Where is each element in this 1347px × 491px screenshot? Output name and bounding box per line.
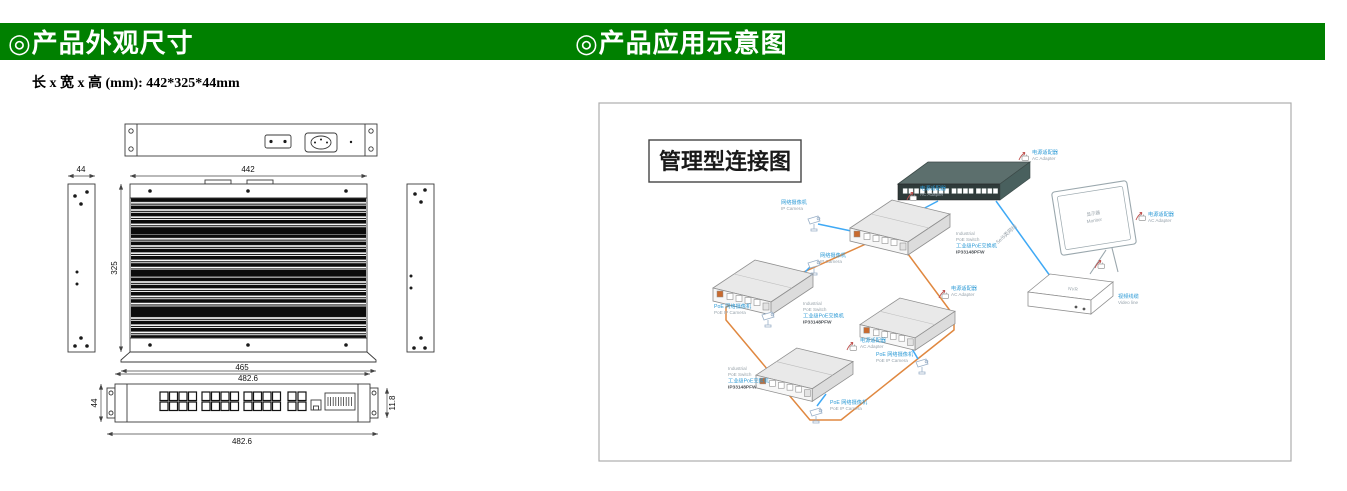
terminal-block	[265, 135, 291, 148]
svg-text:IP Camera: IP Camera	[781, 206, 803, 211]
svg-text:IP33148PFW: IP33148PFW	[728, 385, 757, 391]
svg-text:AC Adapter: AC Adapter	[1032, 156, 1056, 161]
dim-ear-depth: 11.8	[388, 395, 397, 411]
right-side-view	[407, 184, 434, 352]
svg-text:AC Adapter: AC Adapter	[1148, 218, 1172, 223]
svg-text:AC Adapter: AC Adapter	[920, 192, 944, 197]
ac-power-inlet	[305, 133, 337, 152]
svg-text:电源适配器: 电源适配器	[860, 336, 887, 344]
ac-adapter-label-4: 电源适配器 AC Adapter	[860, 336, 887, 349]
dim-top-depth: 325	[110, 261, 119, 275]
svg-text:PoE IP Camera: PoE IP Camera	[714, 310, 746, 315]
svg-text:PoE IP Camera: PoE IP Camera	[876, 358, 908, 363]
svg-text:AC Adapter: AC Adapter	[860, 344, 884, 349]
dim-front-base-width: 482.6	[232, 437, 253, 446]
diagram-title: 管理型连接图	[659, 149, 791, 174]
svg-text:PoE Switch: PoE Switch	[728, 372, 752, 377]
svg-text:IP Camera: IP Camera	[820, 259, 842, 264]
section-title-application: ◎产品应用示意图	[575, 23, 788, 60]
svg-text:Industrial: Industrial	[956, 231, 975, 236]
ac-adapter-label-3: 电源适配器 AC Adapter	[951, 284, 978, 297]
application-diagram: 管理型连接图 5e/6类网线 电源适配器 AC Adapter 显示器 Moni…	[598, 102, 1293, 464]
monitor: 显示器 Monitor	[1051, 180, 1136, 255]
section-title-dimensions: ◎产品外观尺寸	[8, 23, 194, 60]
svg-text:AC Adapter: AC Adapter	[951, 292, 975, 297]
svg-text:工业级PoE交换机: 工业级PoE交换机	[956, 242, 998, 250]
svg-text:电源适配器: 电源适配器	[1032, 148, 1059, 156]
ac-adapter-label-monitor: 电源适配器 AC Adapter	[1148, 210, 1175, 223]
svg-text:IP33148PFW: IP33148PFW	[803, 320, 832, 326]
dim-base-width: 482.6	[238, 374, 259, 383]
svg-text:网络摄像机: 网络摄像机	[820, 251, 847, 259]
ac-adapter-label-core: 电源适配器 AC Adapter	[1032, 148, 1059, 161]
rear-view	[125, 124, 377, 156]
svg-text:IP33148PFW: IP33148PFW	[956, 250, 985, 256]
svg-text:PoE IP Camera: PoE IP Camera	[830, 406, 862, 411]
ac-adapter-label-1: 电源适配器 AC Adapter	[920, 184, 947, 197]
svg-text:PoE 网络摄像机: PoE 网络摄像机	[714, 302, 752, 310]
outline-drawing: 44 442 325 482.6	[55, 112, 445, 452]
svg-text:电源适配器: 电源适配器	[951, 284, 978, 292]
svg-text:工业级PoE交换机: 工业级PoE交换机	[728, 377, 770, 385]
svg-text:工业级PoE交换机: 工业级PoE交换机	[803, 312, 845, 320]
left-side-view: 44	[68, 165, 95, 352]
video-line-label: 视频线缆 Video line	[1118, 292, 1139, 305]
svg-text:PoE 网络摄像机: PoE 网络摄像机	[876, 350, 914, 358]
dim-front-height: 44	[90, 398, 99, 407]
svg-text:PoE 网络摄像机: PoE 网络摄像机	[830, 398, 868, 406]
diagram-title-box: 管理型连接图	[649, 140, 801, 182]
svg-text:Industrial: Industrial	[728, 366, 747, 371]
svg-text:视频线缆: 视频线缆	[1118, 292, 1139, 300]
svg-text:电源适配器: 电源适配器	[1148, 210, 1175, 218]
dim-side-width: 44	[77, 165, 86, 174]
svg-text:PoE Switch: PoE Switch	[803, 307, 827, 312]
section-header-bar: ◎产品外观尺寸 ◎产品应用示意图	[0, 23, 1325, 60]
svg-text:电源适配器: 电源适配器	[920, 184, 947, 192]
svg-text:Video line: Video line	[1118, 300, 1139, 305]
heatsink-fins	[131, 198, 366, 338]
dim-top-width: 442	[241, 165, 255, 174]
dim-front-width: 465	[235, 363, 249, 372]
svg-text:PoE Switch: PoE Switch	[956, 237, 980, 242]
top-view: 442 325 482.6	[110, 165, 376, 383]
svg-text:Industrial: Industrial	[803, 301, 822, 306]
dimension-summary-text: 长 x 宽 x 高 (mm): 442*325*44mm	[32, 72, 240, 92]
svg-text:网络摄像机: 网络摄像机	[781, 198, 808, 206]
